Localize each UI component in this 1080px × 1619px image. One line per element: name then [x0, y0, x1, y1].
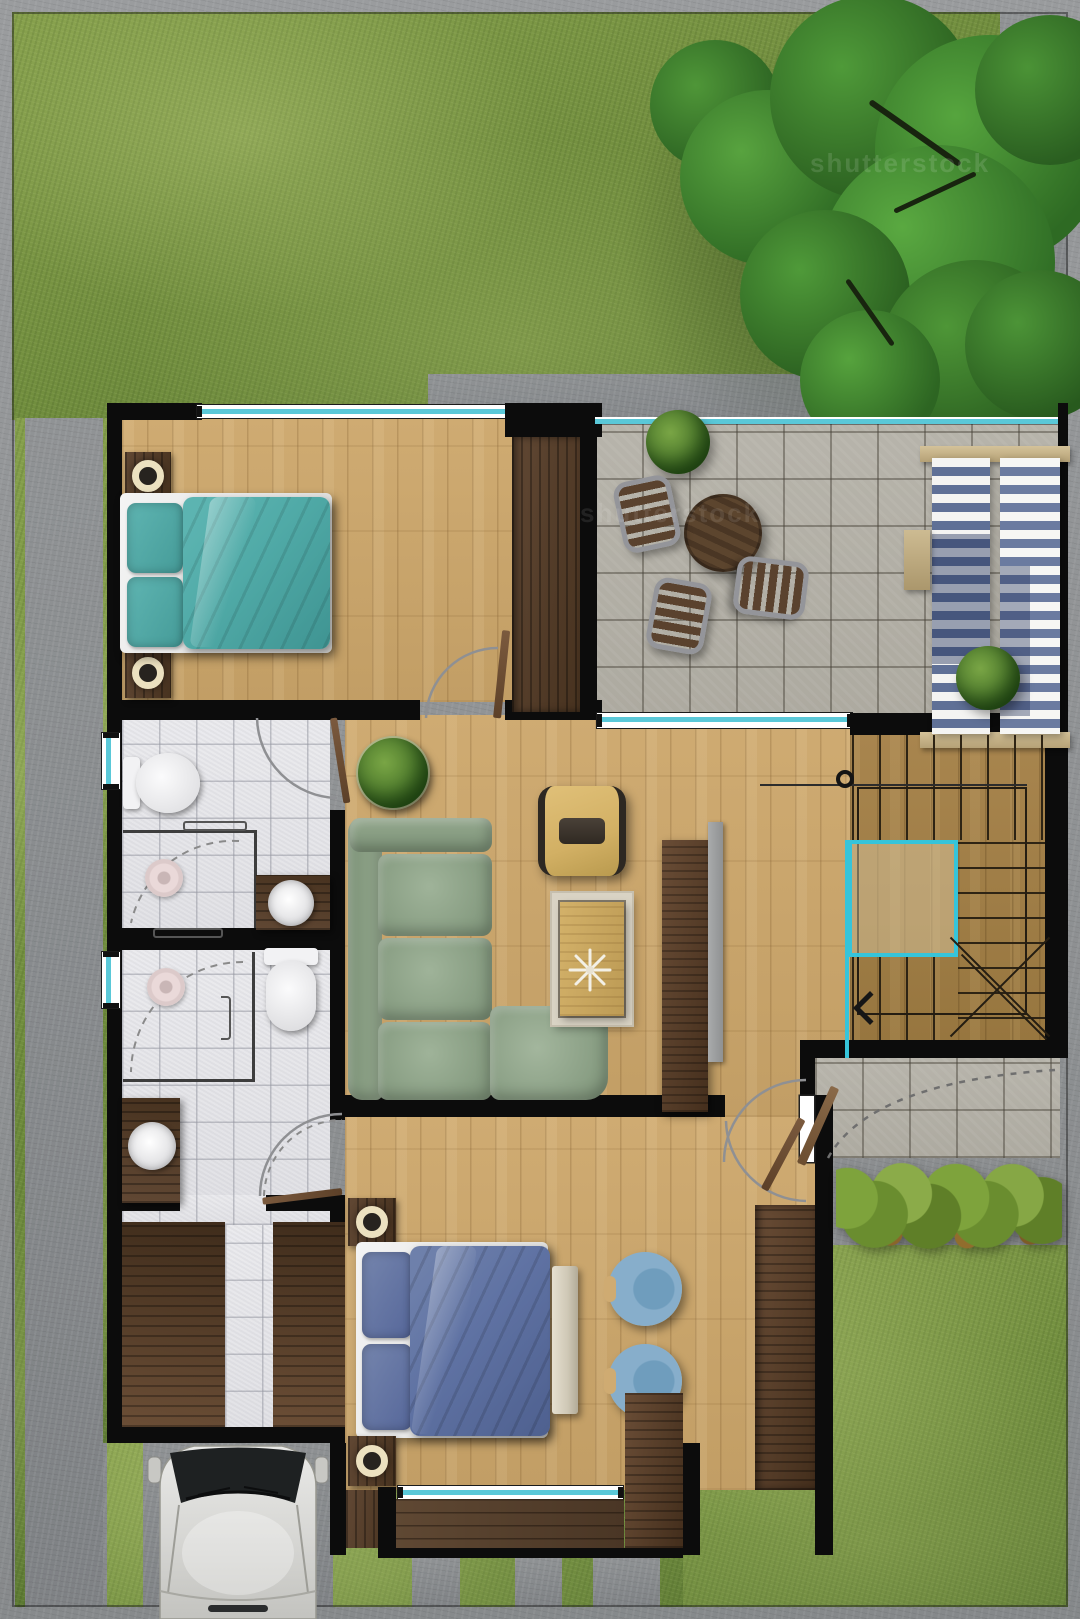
- wall-bed2-bottom-right-col: [683, 1443, 700, 1555]
- dressing-door-arc: [262, 1118, 344, 1198]
- stairs-cyan-edge: [845, 840, 849, 1058]
- porch-dashed-path: [820, 1062, 1060, 1162]
- bedroom-1-wardrobe: [512, 437, 580, 712]
- bathroom-1-door-arc: [255, 716, 339, 800]
- wall-bed2-bottom-left-col: [330, 1443, 346, 1555]
- bathroom-2-window: [102, 952, 120, 1008]
- wall-bath-right-a: [330, 810, 345, 930]
- watermark-text: shutterstock: [810, 148, 990, 179]
- watermark-text: shutterstock: [580, 498, 760, 529]
- bed-1-pillow: [127, 503, 183, 573]
- toilet-bath1: [123, 753, 201, 813]
- toilet-bowl: [136, 753, 200, 813]
- sofa-cushion-3: [378, 1022, 492, 1100]
- sofa-armrest-top: [350, 818, 492, 852]
- car: [146, 1441, 330, 1619]
- bathroom-1-window: [102, 733, 120, 789]
- washbasin-bath2: [128, 1122, 176, 1170]
- dressing-wardrobe-right: [273, 1222, 345, 1427]
- wall-bed2-right: [815, 1095, 833, 1555]
- patio-sliding-door: [597, 713, 852, 728]
- lounger-side-table: [904, 530, 930, 590]
- dressing-wardrobe-left: [122, 1222, 225, 1427]
- large-tree: [620, 0, 1080, 450]
- table-plant-starburst: [568, 948, 612, 992]
- armchair: [538, 786, 626, 876]
- patio-shrub-top: [646, 410, 710, 474]
- wall-bath-right-b: [330, 950, 345, 1120]
- living-potted-plant: [358, 738, 428, 808]
- shower-head-icon: [145, 859, 183, 897]
- lamp-icon: [132, 657, 164, 689]
- wall-bed1-right: [580, 403, 597, 720]
- wall-under-deck: [378, 1548, 683, 1558]
- bedroom-1-window: [197, 405, 510, 418]
- sofa-back: [348, 818, 382, 1100]
- wall-porch-top: [815, 1040, 1062, 1058]
- nightstand-bed1-top: [125, 452, 171, 499]
- bed-2-bench: [552, 1266, 578, 1414]
- shower-head-icon: [147, 968, 185, 1006]
- lamp-icon: [356, 1206, 388, 1238]
- nightstand-bed2-top: [348, 1198, 396, 1246]
- bed-1-pillow: [127, 577, 183, 647]
- tv-screen: [708, 822, 723, 1062]
- shower-rail: [183, 821, 247, 831]
- shower-bath2: [123, 952, 255, 1082]
- nightstand-bed1-bottom: [125, 648, 171, 698]
- patio-chair-3: [732, 555, 811, 621]
- bedroom-2-window: [398, 1486, 623, 1499]
- patio-chair-2: [644, 576, 714, 657]
- bedroom-2-wardrobe: [755, 1205, 815, 1490]
- washbasin-bath1: [268, 880, 314, 926]
- lamp-icon: [356, 1445, 388, 1477]
- nightstand-bed2-bottom: [348, 1436, 396, 1486]
- wall-deck-left-col: [378, 1487, 396, 1557]
- tv-console: [662, 840, 708, 1112]
- lamp-icon: [132, 460, 164, 492]
- stairs-start-circle: [836, 770, 854, 788]
- sofa-cushion-1: [378, 854, 492, 936]
- toilet-bath2: [262, 948, 320, 1032]
- wall-bed1-top-left: [107, 403, 202, 420]
- hedge: [836, 1156, 1062, 1250]
- lounger-left-shade: [932, 534, 990, 664]
- shower-handle: [221, 996, 231, 1040]
- armchair-cushion: [559, 818, 605, 844]
- sofa-cushion-2: [378, 938, 492, 1020]
- bedroom-2-terrace-deck: [396, 1499, 624, 1551]
- shower-rail: [153, 928, 223, 938]
- bedroom-2-round-chair-1: [608, 1252, 682, 1326]
- stairs-landing: [848, 840, 958, 957]
- dressing-walkway: [225, 1225, 273, 1429]
- floor-plan: shutterstock shutterstock: [0, 0, 1080, 1619]
- bed-2-pillow: [362, 1252, 412, 1338]
- stairs-handrail-line: [760, 784, 1027, 786]
- bed-2-pillow: [362, 1344, 412, 1430]
- wall-bath-divider: [107, 928, 345, 950]
- patio-shrub-bottom: [956, 646, 1020, 710]
- toilet-bowl: [266, 961, 316, 1031]
- shower-bath1: [123, 830, 257, 928]
- bed2-corner-wardrobe-right: [625, 1393, 683, 1548]
